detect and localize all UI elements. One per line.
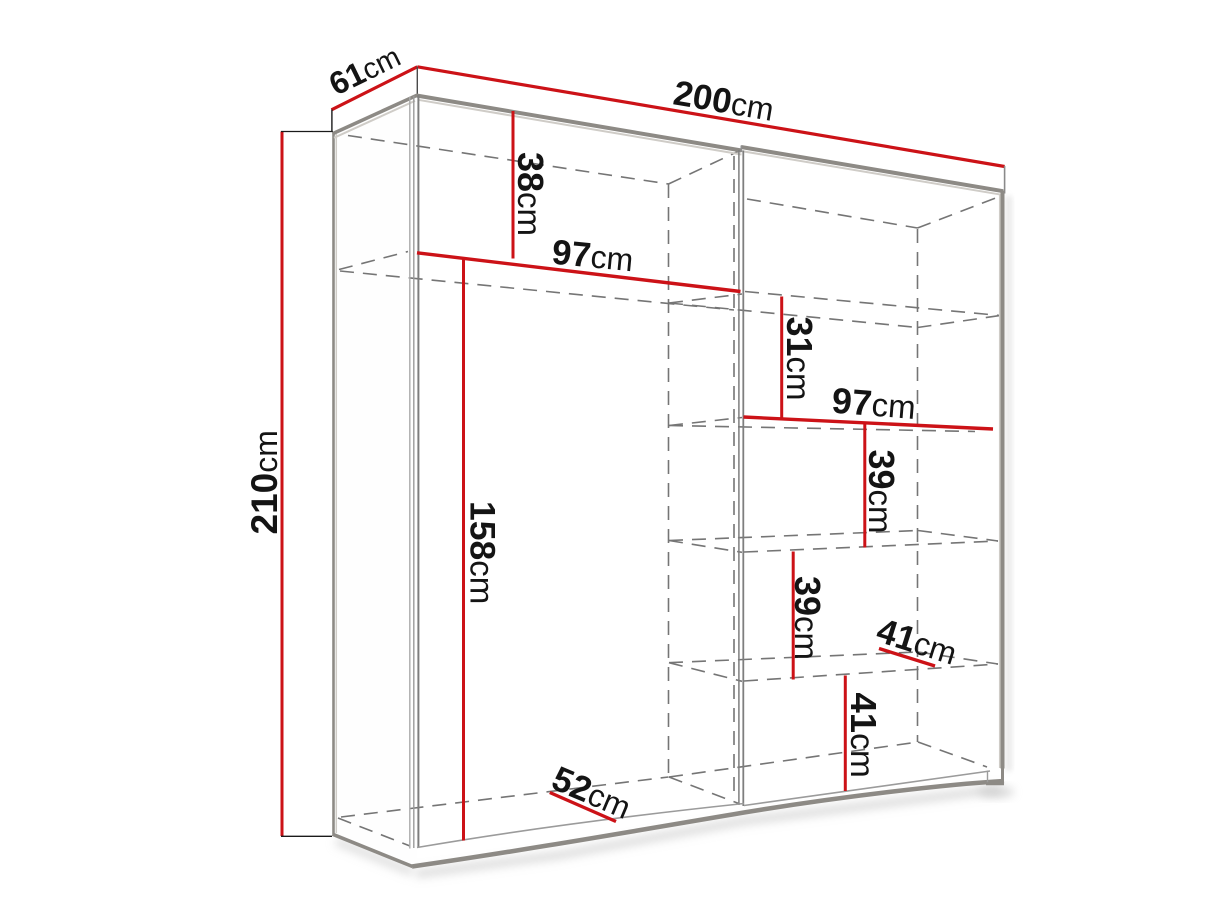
svg-text:210cm: 210cm [244, 430, 285, 534]
svg-text:38cm: 38cm [510, 152, 551, 236]
svg-text:41cm: 41cm [843, 693, 884, 778]
svg-text:31cm: 31cm [779, 317, 820, 401]
svg-text:158cm: 158cm [463, 501, 503, 604]
svg-text:39cm: 39cm [861, 450, 902, 534]
svg-text:39cm: 39cm [787, 576, 828, 660]
